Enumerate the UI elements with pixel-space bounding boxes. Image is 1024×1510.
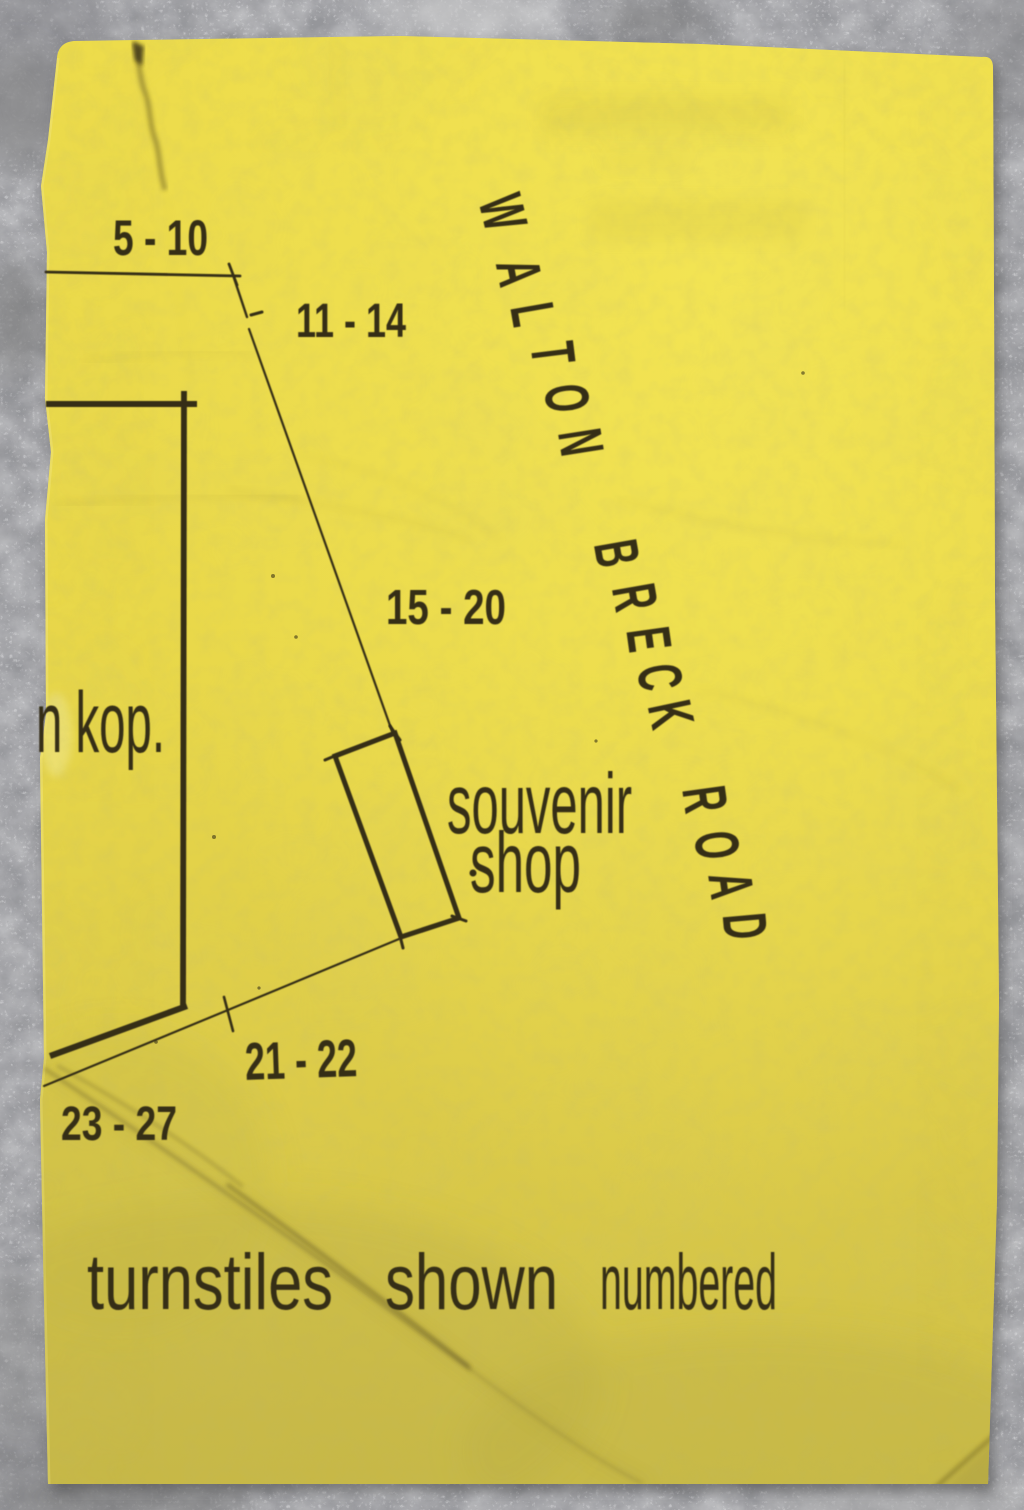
svg-text:21 - 22: 21 - 22 <box>244 1029 358 1092</box>
svg-text:23 - 27: 23 - 27 <box>61 1098 177 1151</box>
svg-text:turnstiles: turnstiles <box>87 1237 333 1326</box>
svg-text:5 - 10: 5 - 10 <box>113 210 208 266</box>
svg-text:n kop.: n kop. <box>36 675 165 771</box>
svg-text:15 - 20: 15 - 20 <box>386 581 506 635</box>
svg-text:numbered: numbered <box>600 1237 777 1326</box>
svg-text:shown: shown <box>385 1237 558 1326</box>
svg-text:shop: shop <box>470 816 581 911</box>
svg-text:11 - 14: 11 - 14 <box>296 295 406 348</box>
